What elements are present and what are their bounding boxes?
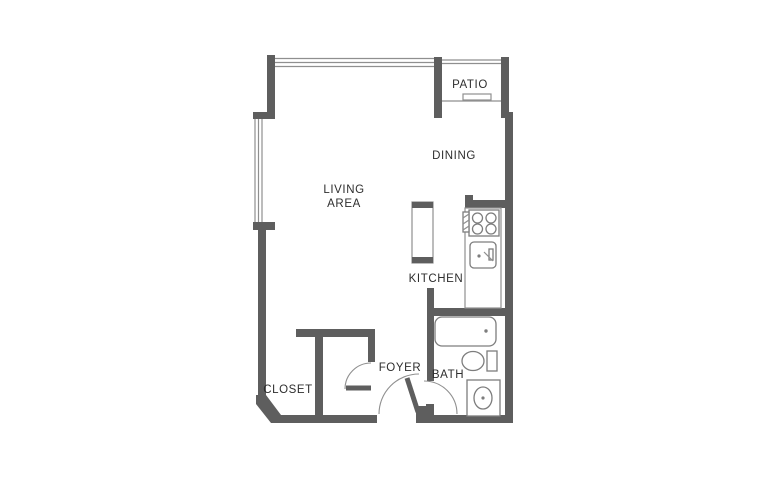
wall-bottom-left (271, 415, 377, 423)
floor-plan-canvas: PATIO DINING LIVING AREA KITCHEN CLOSET … (0, 0, 768, 480)
patio-sliding-door-icon (441, 94, 502, 101)
wall-patio-right (501, 57, 509, 112)
toilet-icon (462, 351, 497, 371)
wall-closet-right (368, 337, 375, 362)
bathtub-icon (435, 317, 496, 346)
room-label-kitchen: KITCHEN (409, 273, 464, 285)
room-label-area: AREA (327, 198, 361, 210)
kitchen-sink-icon (470, 242, 496, 268)
wall-kitchen-top (465, 200, 513, 208)
wall-top-left-post (267, 55, 275, 115)
room-label-dining: DINING (432, 150, 476, 162)
wall-patio-left (434, 57, 442, 118)
patio-railing (440, 60, 503, 64)
left-window (255, 118, 262, 223)
wall-closet-top (296, 329, 375, 337)
room-label-living: LIVING (323, 184, 364, 196)
wall-bath-door-stub (426, 404, 434, 418)
top-window (273, 59, 435, 67)
wall-left (258, 229, 266, 399)
wall-right (505, 112, 513, 423)
wall-foyer-bath (427, 288, 434, 381)
vanity-sink-icon (467, 380, 500, 416)
wall-bath-top (434, 308, 505, 316)
wall-left-window-sill-top (253, 112, 275, 119)
closet-door (345, 363, 371, 389)
room-label-foyer: FOYER (379, 362, 422, 374)
island-counter (412, 202, 433, 263)
room-label-closet: CLOSET (263, 384, 313, 396)
stove-vent-icon (463, 212, 469, 232)
wall-left-window-sill-bottom (253, 222, 275, 230)
room-label-patio: PATIO (452, 79, 488, 91)
entry-door (379, 374, 419, 414)
room-label-bath: BATH (432, 369, 464, 381)
wall-closet-partition (315, 337, 323, 415)
stove-icon (469, 210, 499, 236)
floor-plan: PATIO DINING LIVING AREA KITCHEN CLOSET … (0, 0, 768, 480)
